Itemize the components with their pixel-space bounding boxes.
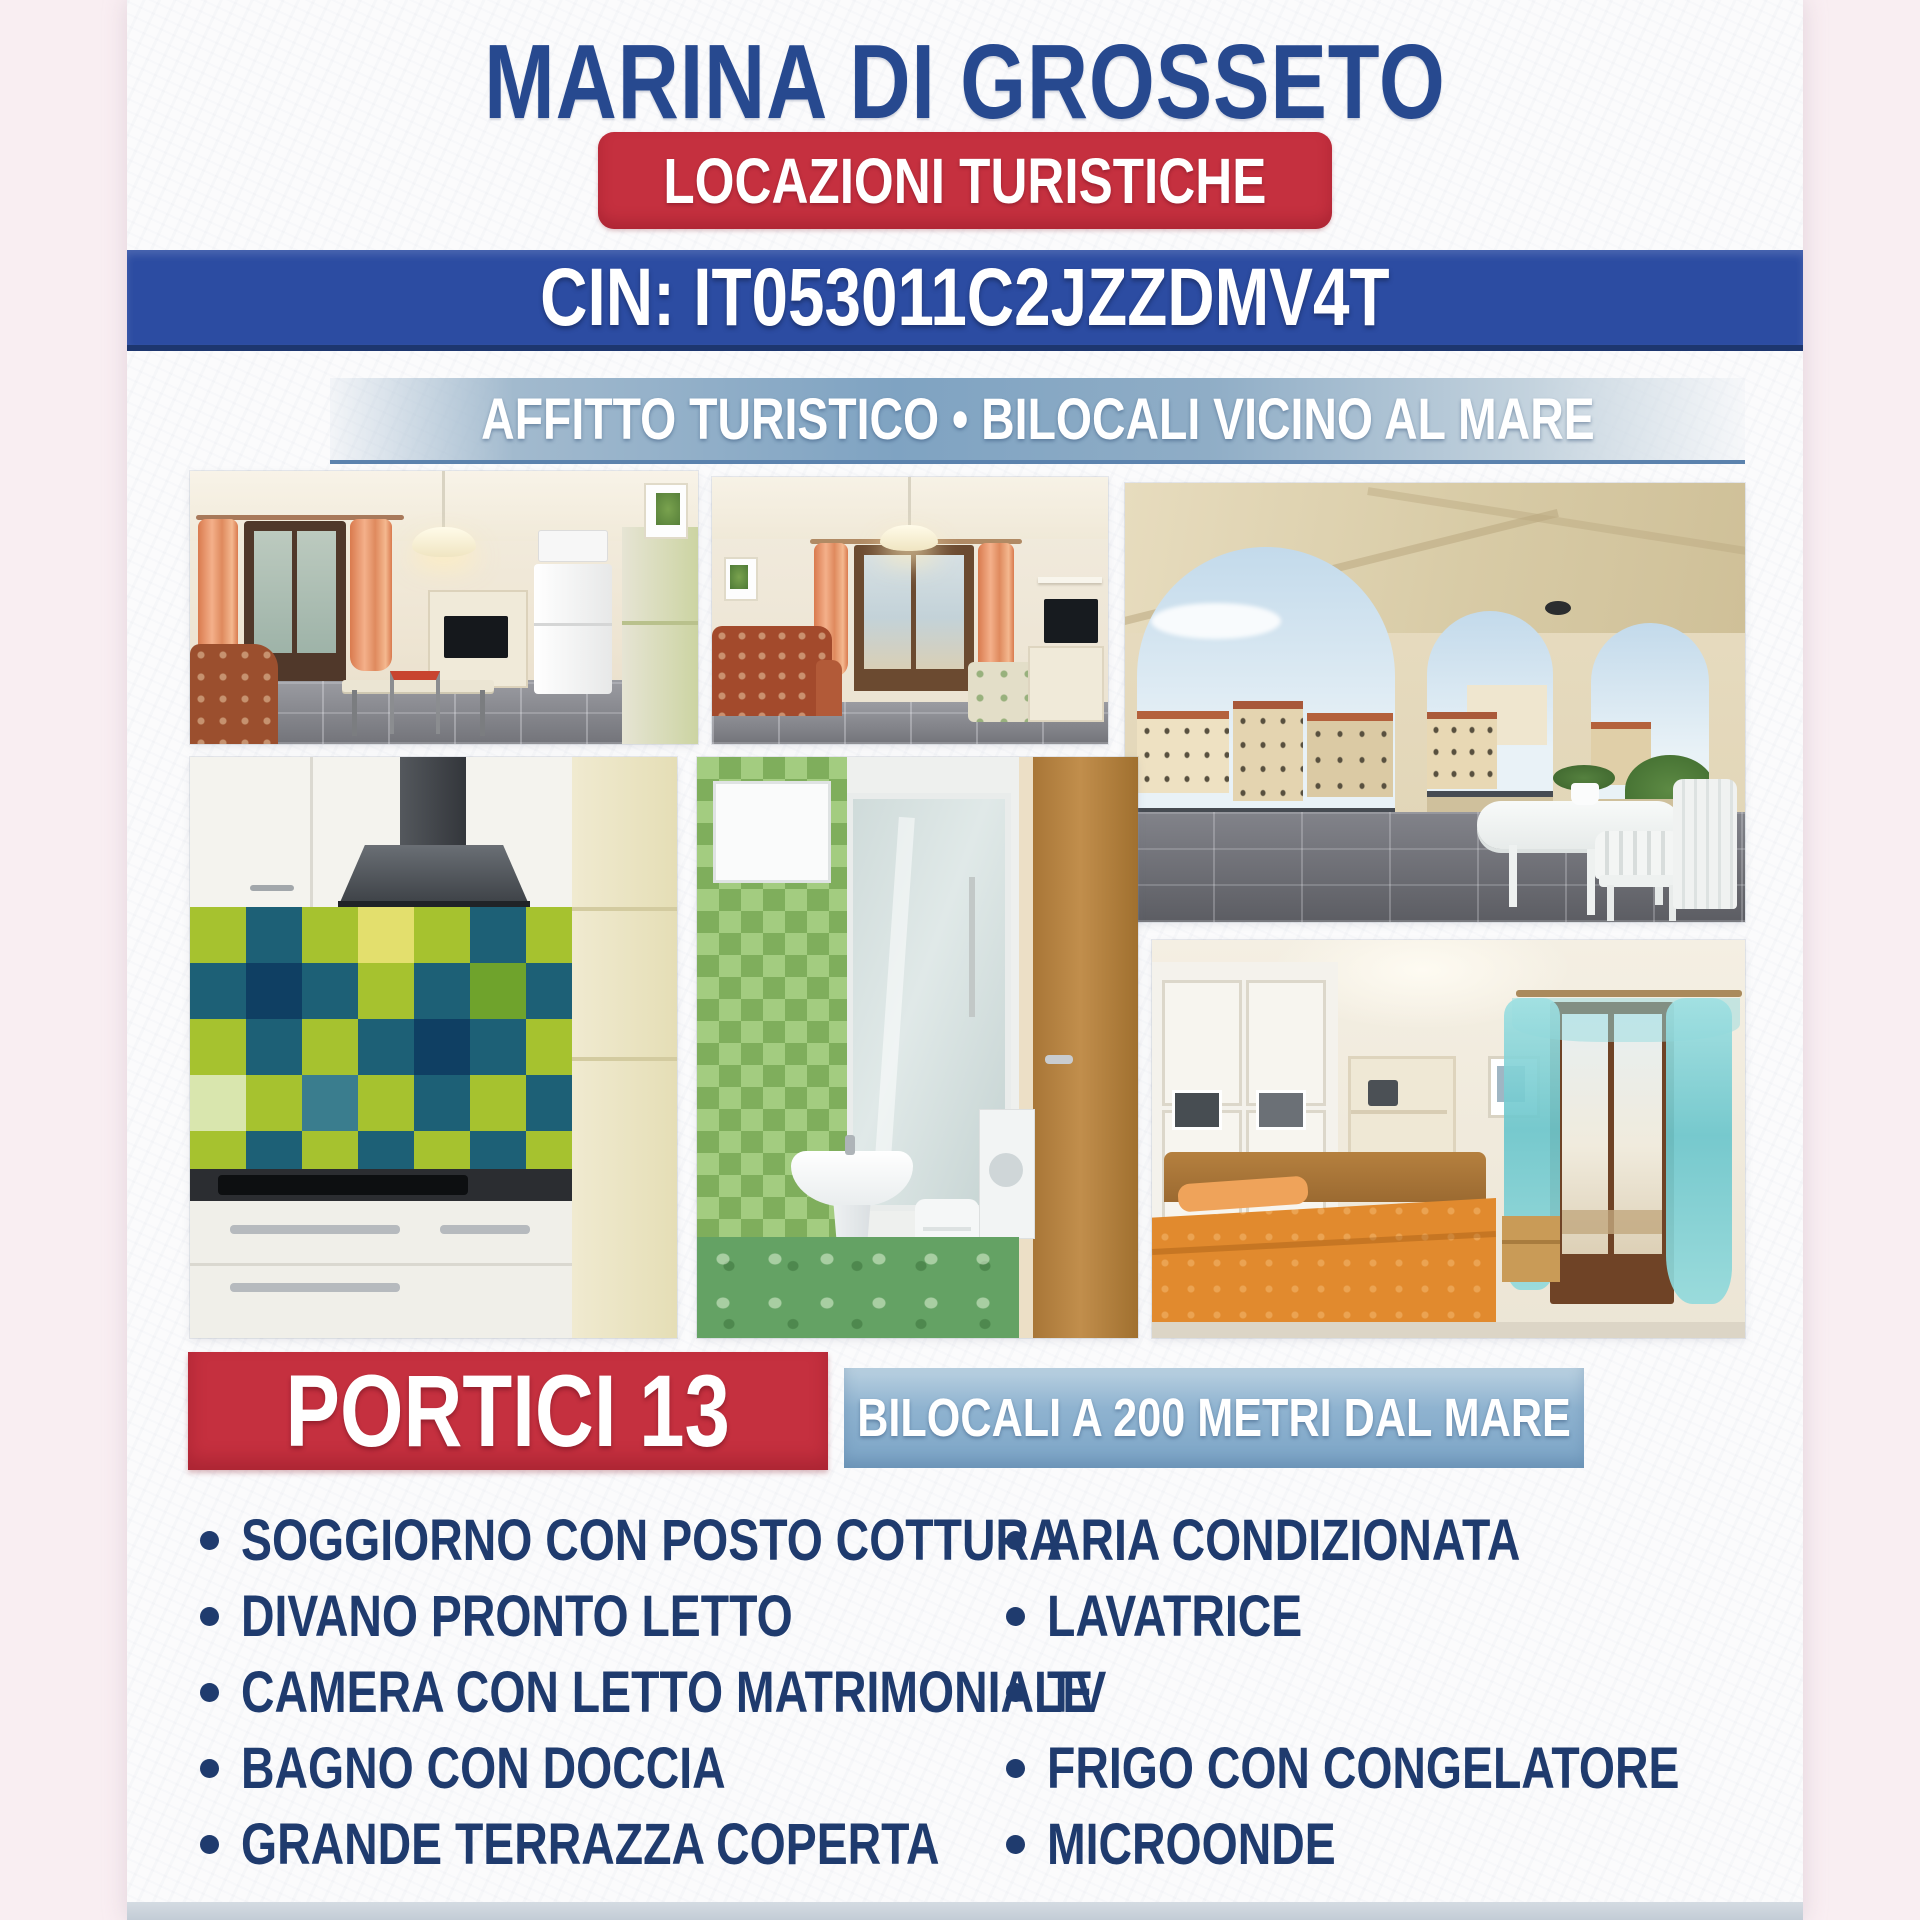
p1-lamp-shade: [412, 527, 476, 557]
page-title-text: MARINA DI GROSSETO: [484, 22, 1445, 143]
feature-label: BAGNO CON DOCCIA: [241, 1735, 726, 1802]
p4-drawer-handle-3: [230, 1283, 400, 1292]
p4-extractor-hood: [338, 845, 530, 907]
feature-item: BAGNO CON DOCCIA: [200, 1730, 980, 1806]
p4-tile-accent-2: [358, 907, 414, 963]
p4-lower-cabinets: [190, 1201, 572, 1338]
p4-cooktop: [218, 1175, 468, 1195]
feature-label: SOGGIORNO CON POSTO COTTURA: [241, 1507, 1063, 1574]
listing-name-text: PORTICI 13: [286, 1353, 730, 1470]
feature-label: MICROONDE: [1047, 1811, 1336, 1878]
listing-tagline-text: BILOCALI A 200 METRI DAL MARE: [857, 1387, 1571, 1449]
p1-table-leg-right: [480, 690, 485, 736]
p4-drawer-line: [190, 1263, 572, 1266]
p1-table-leg-left: [352, 690, 357, 736]
p4-cabinet-split-1: [310, 757, 313, 907]
feature-item: CAMERA CON LETTO MATRIMONIALE: [200, 1654, 980, 1730]
p4-side-cabinet: [572, 757, 677, 1338]
p4-hood-chimney: [400, 757, 466, 845]
p1-armchair: [190, 644, 278, 744]
p3-building-1: [1137, 711, 1229, 793]
p2-lamp-cord: [908, 477, 911, 527]
bullet-dot: [200, 1531, 219, 1550]
p4-tile-accent-6: [302, 1075, 358, 1131]
p3-plant-pot: [1571, 783, 1599, 805]
bullet-dot: [200, 1835, 219, 1854]
bullet-dot: [1006, 1835, 1025, 1854]
p3-chair-right: [1673, 779, 1737, 909]
p6-wardrobe-panel-2: [1246, 980, 1326, 1106]
p1-microwave: [538, 530, 608, 562]
p6-framed-photo-2: [1256, 1090, 1306, 1130]
features-column-right: ARIA CONDIZIONATA LAVATRICE TV FRIGO CON…: [1006, 1502, 1726, 1882]
bullet-dot: [200, 1759, 219, 1778]
feature-item: SOGGIORNO CON POSTO COTTURA: [200, 1502, 980, 1578]
p1-door-mullion: [292, 531, 297, 653]
p3-table-leg-1: [1509, 845, 1517, 907]
p2-sofa: [712, 626, 832, 716]
feature-label: LAVATRICE: [1047, 1583, 1302, 1650]
p6-niche-shelf: [1351, 1110, 1447, 1114]
p4-tile-accent-1: [246, 963, 302, 1019]
bullet-dot: [200, 1607, 219, 1626]
listing-name-banner: PORTICI 13: [188, 1352, 828, 1470]
p2-lamp-shade: [880, 525, 938, 551]
p1-fridge-door-line: [534, 623, 612, 626]
flyer-page: MARINA DI GROSSETO LOCAZIONI TURISTICHE …: [0, 0, 1920, 1920]
p5-mirror-cabinet: [713, 781, 831, 883]
p2-door-mullion: [911, 555, 916, 669]
p6-orange-bed: [1152, 1198, 1496, 1338]
p2-wall-shelf: [1038, 577, 1102, 583]
feature-label: ARIA CONDIZIONATA: [1047, 1507, 1520, 1574]
category-badge: LOCAZIONI TURISTICHE: [598, 132, 1332, 229]
p2-tv: [1044, 599, 1098, 643]
p2-wall-picture-art: [730, 565, 748, 589]
p5-door-handle: [1045, 1055, 1073, 1064]
feature-item: MICROONDE: [1006, 1806, 1726, 1882]
p1-wall-picture-art: [656, 493, 680, 525]
bullet-dot: [1006, 1683, 1025, 1702]
category-badge-text: LOCAZIONI TURISTICHE: [664, 144, 1267, 218]
subtitle-text: AFFITTO TURISTICO • BILOCALI VICINO AL M…: [481, 386, 1594, 453]
p5-green-floor: [697, 1237, 1019, 1338]
p5-shower-handle-bar: [969, 877, 975, 1017]
p6-wardrobe-panel-1: [1162, 980, 1242, 1106]
p3-building-3: [1307, 713, 1393, 797]
photo-bedroom: [1152, 940, 1745, 1338]
p4-side-cabinet-line: [572, 1057, 677, 1061]
p6-niche-item: [1368, 1080, 1398, 1106]
feature-item: DIVANO PRONTO LETTO: [200, 1578, 980, 1654]
p6-floor: [1152, 1322, 1745, 1338]
p5-tap: [845, 1135, 855, 1155]
feature-label: GRANDE TERRAZZA COPERTA: [241, 1811, 940, 1878]
subtitle-band: AFFITTO TURISTICO • BILOCALI VICINO AL M…: [330, 378, 1745, 464]
p4-tile-accent-4: [190, 1075, 246, 1131]
p1-kitchen-cabinet: [622, 527, 698, 744]
feature-label: CAMERA CON LETTO MATRIMONIALE: [241, 1659, 1093, 1726]
p5-toilet-seat-line: [923, 1227, 971, 1231]
feature-label: DIVANO PRONTO LETTO: [241, 1583, 793, 1650]
photo-living-room-sofa: [712, 477, 1108, 744]
bullet-dot: [1006, 1607, 1025, 1626]
flyer-paper: MARINA DI GROSSETO LOCAZIONI TURISTICHE …: [127, 0, 1803, 1920]
cin-strip: CIN: IT053011C2JZZDMV4T: [127, 250, 1803, 351]
photo-covered-terrace: [1125, 483, 1745, 922]
p1-fridge: [534, 564, 612, 694]
feature-item: GRANDE TERRAZZA COPERTA: [200, 1806, 980, 1882]
p5-door-frame: [1019, 757, 1033, 1338]
p6-bedside-table: [1502, 1216, 1560, 1282]
feature-item: FRIGO CON CONGELATORE: [1006, 1730, 1726, 1806]
p6-curtain-right: [1666, 998, 1732, 1304]
p3-cloud: [1151, 603, 1281, 639]
cin-text: CIN: IT053011C2JZZDMV4T: [540, 251, 1389, 345]
p6-framed-photo-1: [1172, 1090, 1222, 1130]
bottom-edge-strip: [127, 1902, 1803, 1920]
p3-building-2: [1233, 701, 1303, 801]
bullet-dot: [1006, 1759, 1025, 1778]
p3-table-leg-2: [1587, 849, 1595, 915]
p4-tile-accent-5: [470, 963, 526, 1019]
p3-building-5: [1427, 712, 1497, 789]
p3-arch-middle: [1427, 611, 1553, 825]
bullet-dot: [1006, 1531, 1025, 1550]
photo-bathroom: [697, 757, 1138, 1338]
bullet-dot: [200, 1683, 219, 1702]
feature-item: LAVATRICE: [1006, 1578, 1726, 1654]
p1-curtain-right: [350, 519, 392, 671]
p6-balcony-view: [1562, 1210, 1662, 1234]
listing-tagline-banner: BILOCALI A 200 METRI DAL MARE: [844, 1368, 1584, 1468]
p6-bedside-table-drawer: [1502, 1240, 1560, 1244]
p4-side-cabinet-line-2: [572, 907, 677, 911]
p4-cabinet-handle-1: [250, 885, 294, 891]
p2-sofa-armrest: [816, 660, 842, 716]
features-column-left: SOGGIORNO CON POSTO COTTURA DIVANO PRONT…: [200, 1502, 980, 1882]
p3-chair-leg-1: [1607, 885, 1614, 921]
p2-curtain-right: [978, 543, 1014, 677]
p2-tv-cabinet: [1028, 646, 1104, 722]
photo-kitchen-tiles: [190, 757, 677, 1338]
p1-tv: [444, 616, 508, 658]
p1-dining-chair: [390, 671, 440, 734]
feature-label: TV: [1047, 1659, 1106, 1726]
p5-washing-machine-porthole: [989, 1153, 1023, 1187]
feature-item: TV: [1006, 1654, 1726, 1730]
p6-curtain-rod: [1516, 990, 1742, 997]
page-title: MARINA DI GROSSETO: [127, 26, 1803, 138]
feature-item: ARIA CONDIZIONATA: [1006, 1502, 1726, 1578]
p1-lamp-cord: [442, 471, 445, 529]
p4-tile-accent-3: [414, 1019, 470, 1075]
p1-kitchen-counter-line: [622, 621, 698, 625]
p4-drawer-handle-1: [230, 1225, 400, 1234]
p5-wooden-door: [1033, 757, 1138, 1338]
p4-drawer-handle-2: [440, 1225, 530, 1234]
feature-label: FRIGO CON CONGELATORE: [1047, 1735, 1679, 1802]
photo-living-room-kitchen: [190, 471, 698, 744]
p3-chair-back: [1595, 831, 1683, 879]
